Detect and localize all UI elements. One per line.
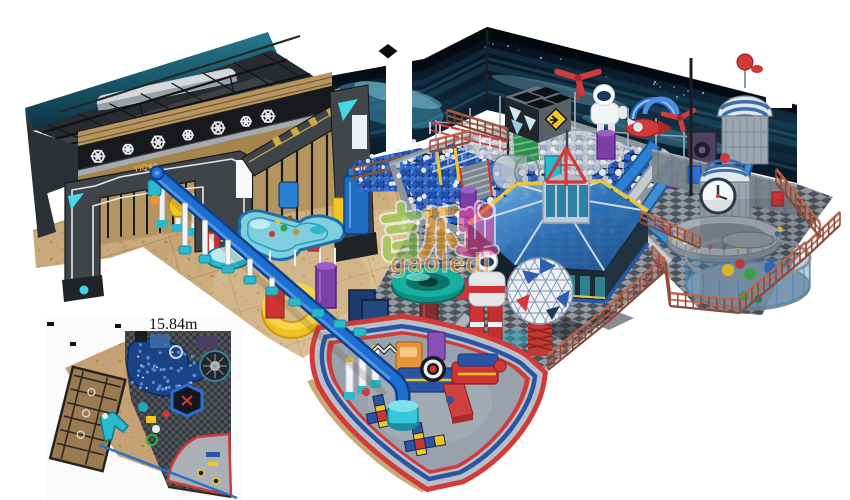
svg-text:15.84m: 15.84m — [149, 316, 198, 333]
svg-text:gaoledi: gaoledi — [390, 248, 492, 278]
